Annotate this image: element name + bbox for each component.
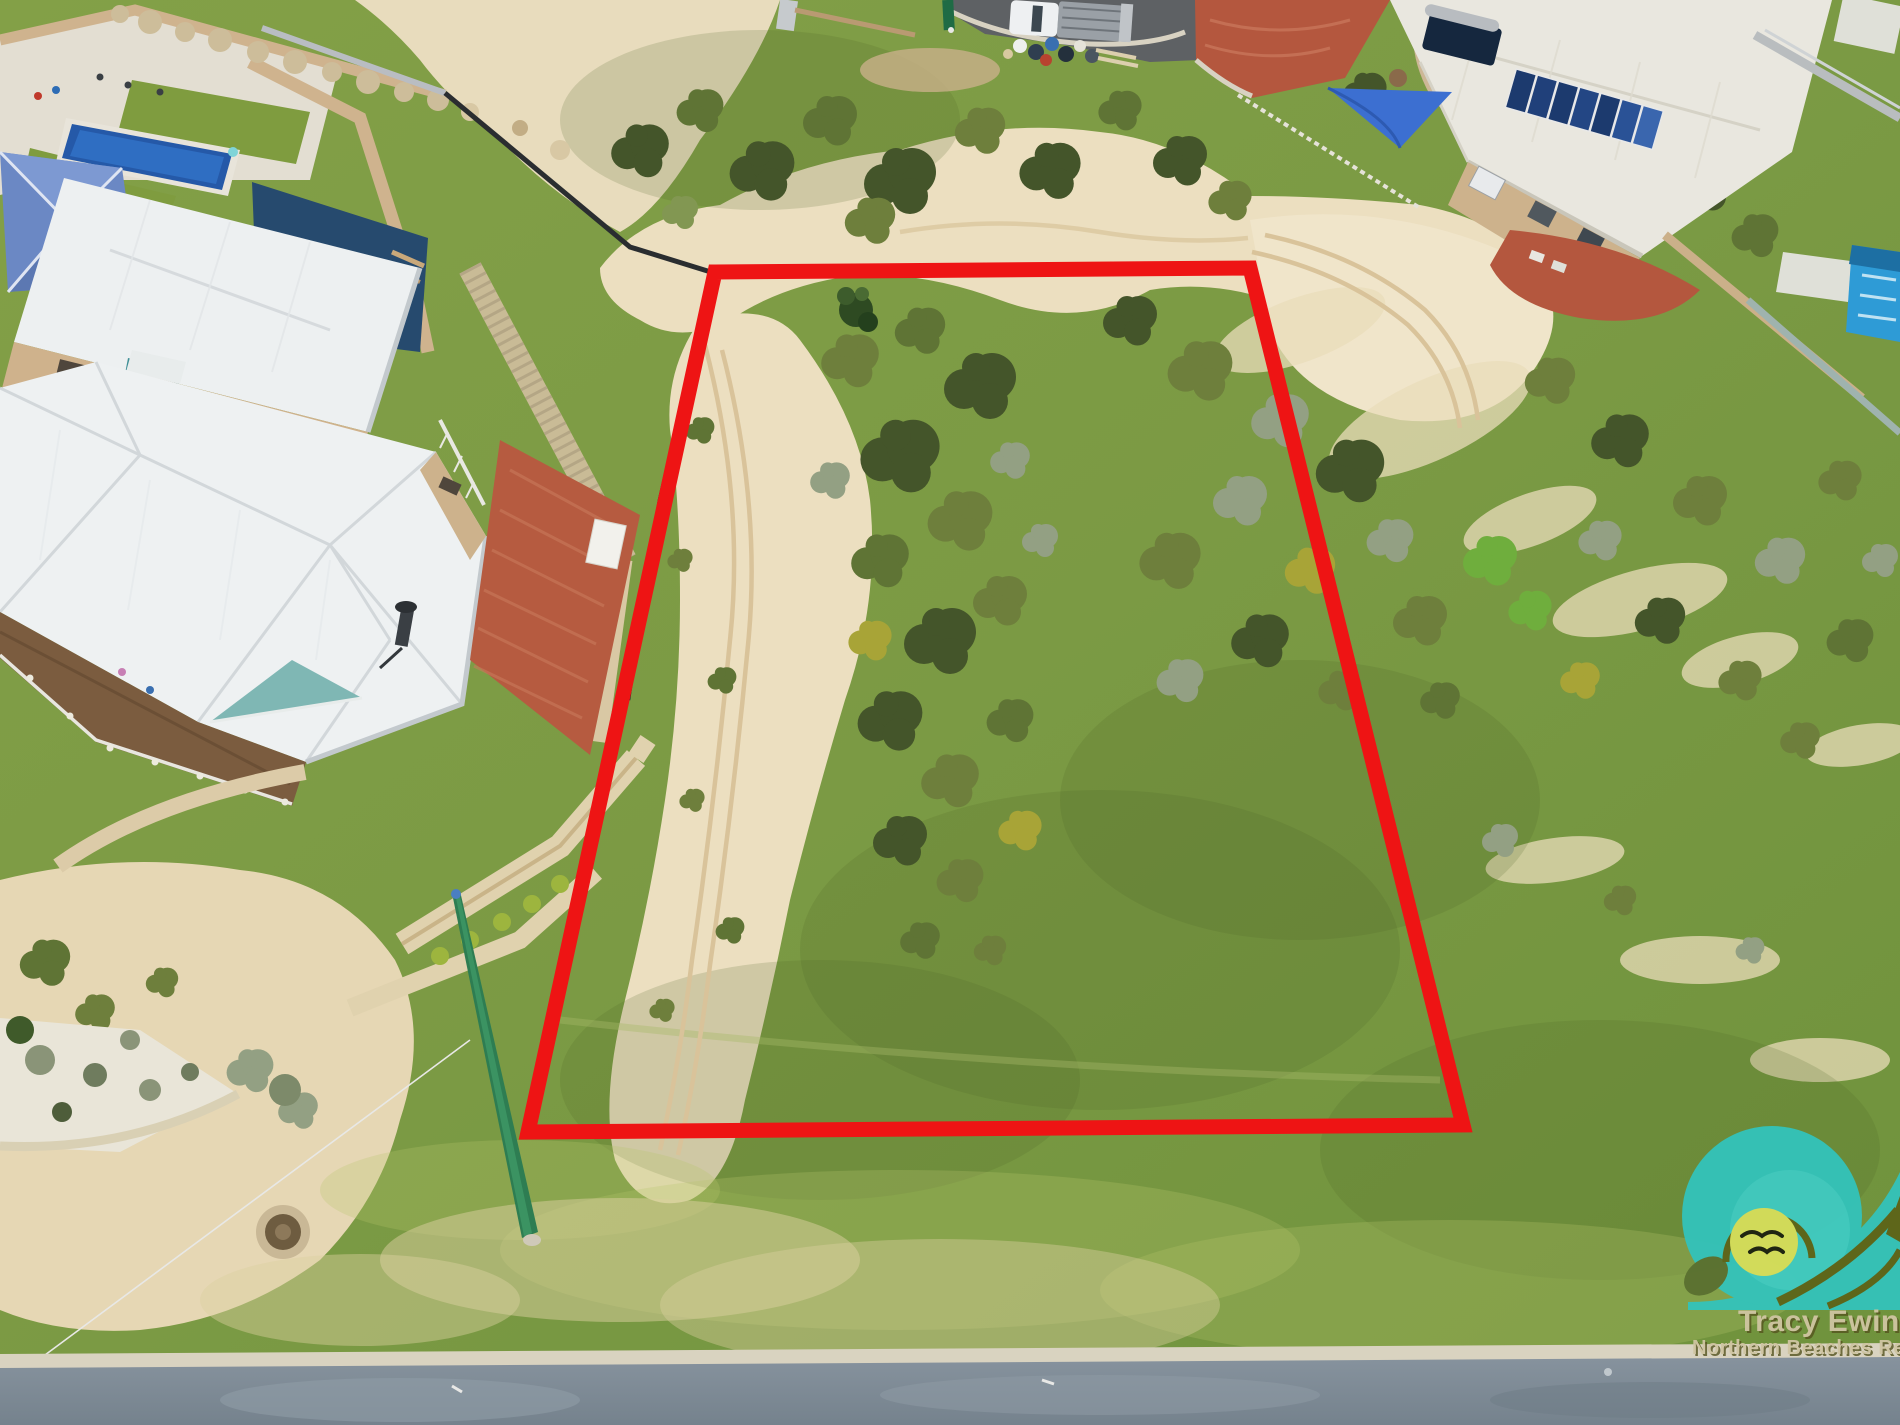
- sun-icon: [1730, 1208, 1798, 1276]
- agency-line-text: Northern Beaches Re: [1692, 1337, 1900, 1359]
- blue-shack: [1846, 245, 1900, 342]
- aerial-lot-photo: Tracy Ewins Tracy Ewins Northern Beaches…: [0, 0, 1900, 1425]
- street: [0, 1343, 1900, 1425]
- person: [118, 668, 126, 676]
- green-pole-top: [942, 0, 955, 30]
- play-equipment: [34, 92, 42, 100]
- fire-pit: [256, 1205, 310, 1259]
- agent-name-text: Tracy Ewins: [1738, 1305, 1900, 1338]
- pole-cap: [451, 889, 461, 899]
- aerial-photo-canvas: Tracy Ewins Tracy Ewins Northern Beaches…: [0, 0, 1900, 1425]
